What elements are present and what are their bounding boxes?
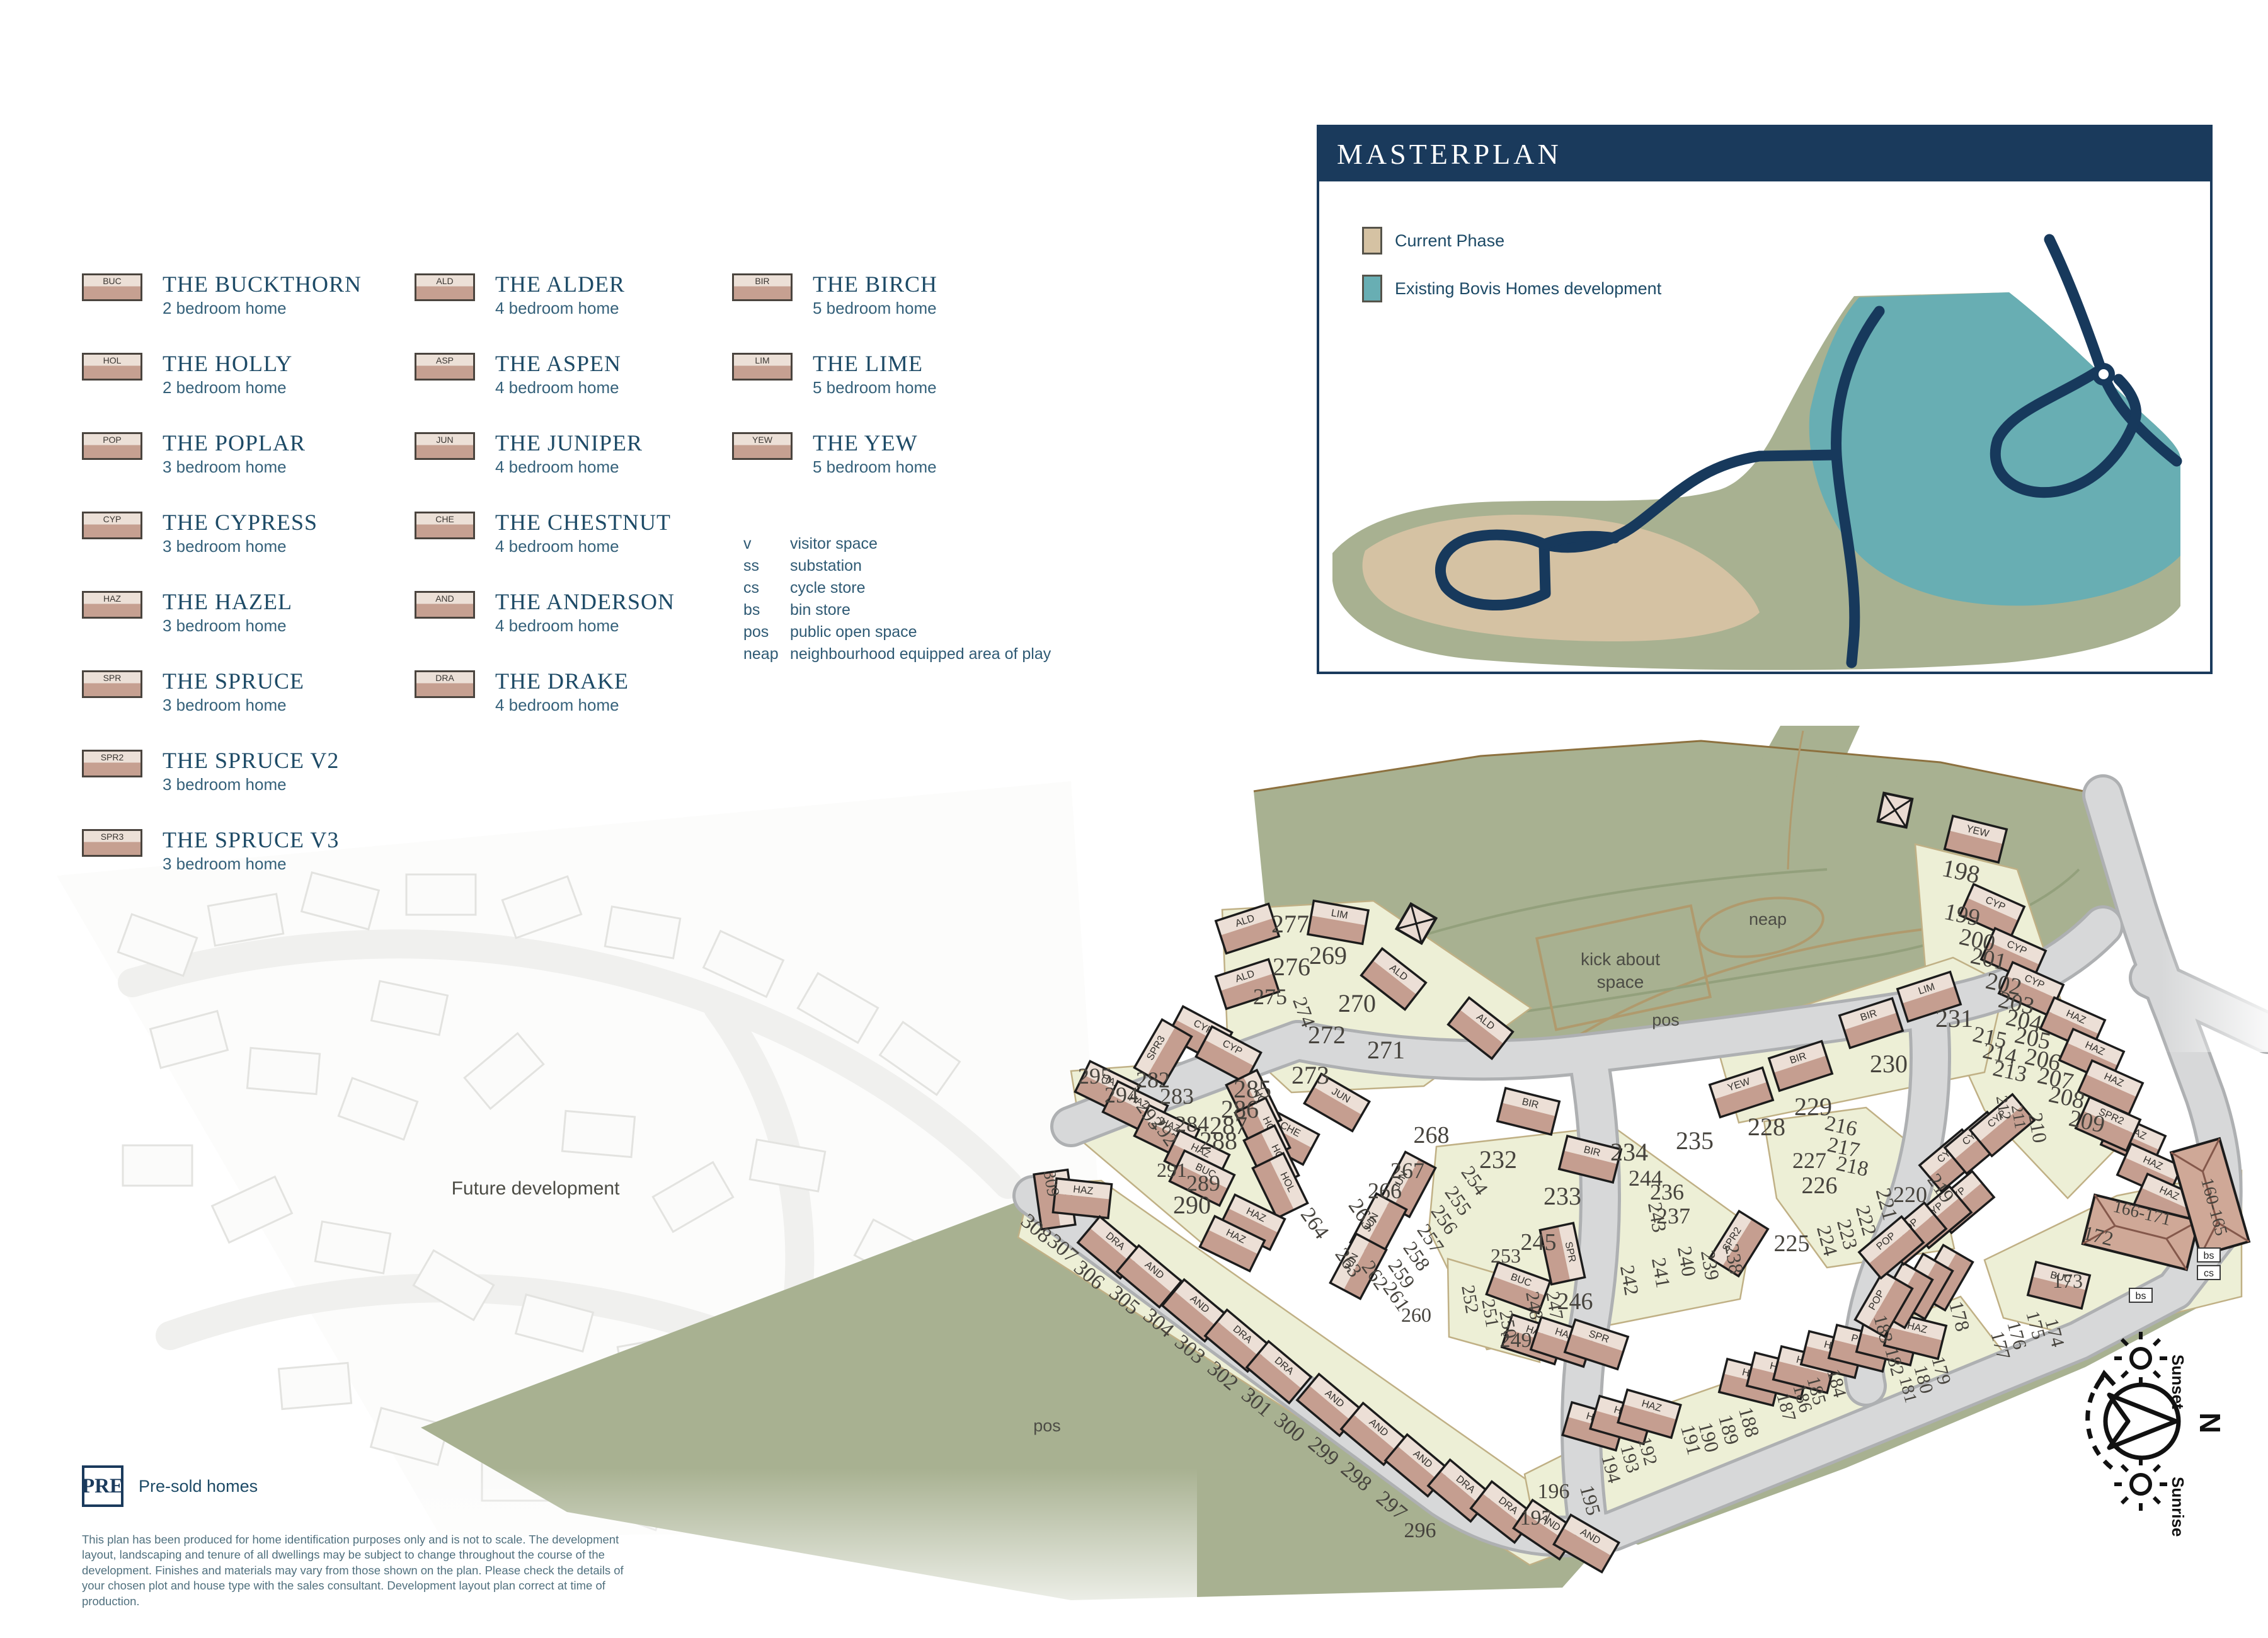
plot-label-231: 231 — [1935, 1004, 1973, 1033]
store-label-bs: bs — [2197, 1248, 2220, 1262]
svg-text:bs: bs — [2204, 1251, 2214, 1261]
house-type-icon: BIR — [732, 273, 793, 301]
house-type-name: THE BIRCH — [813, 271, 937, 297]
compass-sunrise-label: Sunrise — [2168, 1477, 2187, 1537]
house-type-bedrooms: 2 bedroom home — [163, 299, 287, 318]
plot-label-227: 227 — [1792, 1148, 1826, 1173]
masterplan-inset-map — [1320, 183, 2211, 674]
house-type-bedrooms: 5 bedroom home — [813, 457, 937, 477]
store-label-cs: cs — [2197, 1266, 2220, 1280]
house-type-icon: SPR3 — [82, 829, 142, 857]
house-type-name: THE ANDERSON — [495, 588, 675, 615]
house-type-and: ANDTHE ANDERSON4 bedroom home — [415, 588, 742, 658]
presold-badge: PRE — [82, 1465, 123, 1507]
garage-block — [1878, 793, 1913, 828]
house-type-bedrooms: 3 bedroom home — [163, 696, 287, 715]
house-type-name: THE SPRUCE — [163, 668, 304, 694]
plot-label-253: 253 — [1491, 1244, 1521, 1267]
house-type-icon: POP — [82, 432, 142, 460]
house-type-name: THE SPRUCE V3 — [163, 827, 339, 853]
house-type-icon: YEW — [732, 432, 793, 460]
sun-icon — [2114, 1332, 2167, 1385]
plot-label-232: 232 — [1479, 1145, 1517, 1174]
plot-label-272: 272 — [1308, 1021, 1346, 1049]
area-label: kick about — [1581, 949, 1660, 969]
house-type-buc: BUCTHE BUCKTHORN2 bedroom home — [82, 271, 409, 340]
plot-label-267: 267 — [1390, 1158, 1424, 1183]
house-type-bedrooms: 3 bedroom home — [163, 616, 287, 636]
house-type-bedrooms: 5 bedroom home — [813, 299, 937, 318]
house-type-che: CHETHE CHESTNUT4 bedroom home — [415, 509, 742, 578]
plot-label-271: 271 — [1367, 1036, 1405, 1064]
plot-label-229: 229 — [1794, 1092, 1832, 1121]
plot-label-234: 234 — [1610, 1138, 1648, 1166]
house-type-name: THE JUNIPER — [495, 430, 643, 456]
house-type-name: THE LIME — [813, 350, 923, 377]
store-label-bs: bs — [2129, 1288, 2152, 1302]
masterplan-title: MASTERPLAN — [1337, 137, 1562, 171]
house-type-bedrooms: 5 bedroom home — [813, 378, 937, 398]
house-type-icon: CYP — [82, 512, 142, 539]
presold-code: PRE — [82, 1475, 123, 1498]
plot-label-228: 228 — [1748, 1113, 1785, 1141]
house-type-cyp: CYPTHE CYPRESS3 bedroom home — [82, 509, 409, 578]
house-type-bedrooms: 4 bedroom home — [495, 696, 619, 715]
plot-label-273: 273 — [1291, 1061, 1329, 1089]
house-type-haz: HAZTHE HAZEL3 bedroom home — [82, 588, 409, 658]
house-marker-bir: BIR — [1498, 1088, 1559, 1135]
house-type-icon: SPR2 — [82, 750, 142, 777]
plot-label-225: 225 — [1774, 1230, 1810, 1257]
area-label: pos — [1652, 1011, 1680, 1029]
plot-label-264: 264 — [1296, 1203, 1334, 1243]
house-type-bedrooms: 4 bedroom home — [495, 457, 619, 477]
house-type-name: THE HOLLY — [163, 350, 292, 377]
house-type-name: THE POPLAR — [163, 430, 306, 456]
plot-label-290: 290 — [1173, 1191, 1211, 1219]
compass-north-label: N — [2194, 1412, 2226, 1433]
abbrev-ss: sssubstation — [743, 555, 1051, 577]
house-type-bedrooms: 4 bedroom home — [495, 378, 619, 398]
abbrev-bs: bsbin store — [743, 599, 1051, 621]
house-type-asp: ASPTHE ASPEN4 bedroom home — [415, 350, 742, 420]
house-type-bedrooms: 4 bedroom home — [495, 299, 619, 318]
plot-label-275: 275 — [1253, 984, 1287, 1009]
house-type-icon: HOL — [82, 353, 142, 381]
area-label: Future development — [452, 1178, 620, 1199]
plot-label-269: 269 — [1309, 941, 1347, 970]
plot-label-173: 173 — [2053, 1269, 2083, 1292]
disclaimer-text: This plan has been produced for home ide… — [82, 1532, 630, 1609]
abbrev-neap: neapneighbourhood equipped area of play — [743, 643, 1051, 665]
svg-text:cs: cs — [2204, 1268, 2214, 1279]
plot-label-270: 270 — [1338, 989, 1376, 1017]
plot-label-295: 295 — [1078, 1063, 1112, 1089]
house-type-name: THE YEW — [813, 430, 918, 456]
house-type-icon: DRA — [415, 670, 475, 698]
presold-label: Pre-sold homes — [139, 1477, 258, 1496]
masterplan-panel: MASTERPLAN Current Phase Existing Bovis … — [1317, 125, 2213, 674]
plot-label-296: 296 — [1404, 1519, 1436, 1542]
house-marker-haz: HAZ — [1053, 1179, 1111, 1218]
house-type-bedrooms: 4 bedroom home — [495, 616, 619, 636]
house-type-name: THE CYPRESS — [163, 509, 318, 535]
abbrev-pos: pospublic open space — [743, 621, 1051, 643]
area-label: space — [1597, 972, 1644, 992]
house-type-bedrooms: 3 bedroom home — [163, 457, 287, 477]
abbrev-v: vvisitor space — [743, 533, 1051, 555]
house-type-icon: ASP — [415, 353, 475, 381]
house-type-name: THE ASPEN — [495, 350, 621, 377]
house-type-icon: JUN — [415, 432, 475, 460]
plot-label-230: 230 — [1870, 1050, 1908, 1078]
plot-label-276: 276 — [1273, 953, 1310, 981]
house-type-bedrooms: 3 bedroom home — [163, 854, 287, 874]
house-type-spr2: SPR2THE SPRUCE V23 bedroom home — [82, 747, 409, 816]
house-type-icon: SPR — [82, 670, 142, 698]
house-type-bedrooms: 3 bedroom home — [163, 537, 287, 556]
plot-label-245: 245 — [1521, 1229, 1557, 1256]
house-type-dra: DRATHE DRAKE4 bedroom home — [415, 668, 742, 737]
plot-label-291: 291 — [1157, 1159, 1187, 1181]
abbrev-cs: cscycle store — [743, 577, 1051, 599]
masterplan-page: YEWCYPCYPCYPHAZHAZHAZHAZHAZHAZSPR2BUCLIM… — [0, 0, 2268, 1638]
plot-label-233: 233 — [1543, 1182, 1581, 1210]
plot-label-283: 283 — [1160, 1084, 1194, 1109]
plot-label-235: 235 — [1676, 1126, 1714, 1155]
plot-label-288: 288 — [1200, 1126, 1237, 1155]
house-type-bir: BIRTHE BIRCH5 bedroom home — [732, 271, 1060, 340]
masterplan-header: MASTERPLAN — [1319, 127, 2210, 181]
house-type-icon: AND — [415, 591, 475, 619]
plot-label-277: 277 — [1271, 910, 1309, 938]
house-type-icon: HAZ — [82, 591, 142, 619]
area-label: pos — [1033, 1416, 1061, 1435]
plot-label-196: 196 — [1538, 1480, 1570, 1503]
house-type-name: THE HAZEL — [163, 588, 292, 615]
house-type-ald: ALDTHE ALDER4 bedroom home — [415, 271, 742, 340]
abbreviation-key: vvisitor spacesssubstationcscycle storeb… — [743, 533, 1051, 665]
plot-label-197: 197 — [1520, 1506, 1552, 1530]
house-type-name: THE DRAKE — [495, 668, 629, 694]
plot-label-268: 268 — [1414, 1122, 1450, 1148]
house-type-icon: BUC — [82, 273, 142, 301]
house-type-hol: HOLTHE HOLLY2 bedroom home — [82, 350, 409, 420]
house-type-bedrooms: 3 bedroom home — [163, 775, 287, 794]
house-type-bedrooms: 2 bedroom home — [163, 378, 287, 398]
house-type-pop: POPTHE POPLAR3 bedroom home — [82, 430, 409, 499]
sun-icon — [2114, 1458, 2167, 1511]
house-type-name: THE CHESTNUT — [495, 509, 671, 535]
house-type-icon: ALD — [415, 273, 475, 301]
house-type-spr3: SPR3THE SPRUCE V33 bedroom home — [82, 827, 409, 896]
house-type-icon: LIM — [732, 353, 793, 381]
house-type-bedrooms: 4 bedroom home — [495, 537, 619, 556]
area-label: neap — [1749, 910, 1787, 929]
house-type-lim: LIMTHE LIME5 bedroom home — [732, 350, 1060, 420]
house-type-yew: YEWTHE YEW5 bedroom home — [732, 430, 1060, 499]
house-type-name: THE ALDER — [495, 271, 625, 297]
svg-text:HAZ: HAZ — [1073, 1184, 1094, 1196]
svg-text:bs: bs — [2136, 1291, 2146, 1302]
house-type-spr: SPRTHE SPRUCE3 bedroom home — [82, 668, 409, 737]
inset-roundabout — [2095, 366, 2112, 382]
house-type-name: THE SPRUCE V2 — [163, 747, 339, 774]
house-type-icon: CHE — [415, 512, 475, 539]
compass-sunset-label: Sunset — [2168, 1354, 2187, 1409]
house-type-name: THE BUCKTHORN — [163, 271, 362, 297]
plot-label-244: 244 — [1629, 1165, 1663, 1191]
plot-label-226: 226 — [1802, 1172, 1838, 1199]
house-type-jun: JUNTHE JUNIPER4 bedroom home — [415, 430, 742, 499]
